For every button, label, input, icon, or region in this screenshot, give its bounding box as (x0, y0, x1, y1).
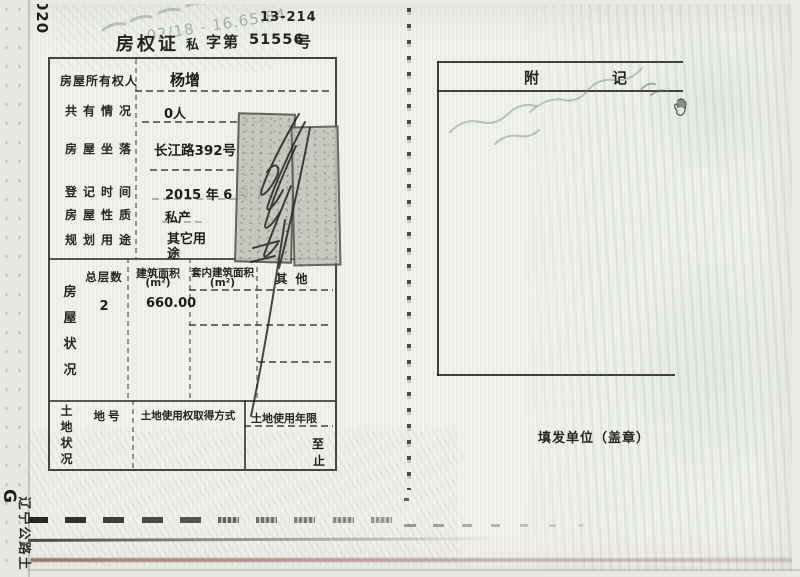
binding-perforation-marks (407, 8, 411, 490)
cut-mark (103, 517, 124, 523)
scan-margin-right (792, 0, 800, 577)
row-label-owner: 房屋所有权人 (60, 72, 138, 89)
cut-mark (256, 517, 277, 523)
row-label-coowner: 共有情况 (65, 102, 137, 119)
cut-mark-faded (433, 524, 444, 527)
row-label-regdate: 登记时间 (65, 183, 137, 200)
cut-mark-faded (578, 524, 584, 527)
cut-mark-faded (491, 524, 500, 527)
col-header-floors: 总层数 (80, 269, 128, 285)
term-from: 至 (312, 435, 324, 452)
form-code: 13-214 (260, 10, 317, 25)
land-status-side-label: 土地状况 (59, 403, 74, 467)
col-header-method: 土地使用权取得方式 (138, 408, 238, 423)
cut-mark (142, 517, 163, 523)
floors-value: 2 (89, 299, 119, 314)
scan-margin-bottom (0, 571, 800, 577)
scan-edge-bottom (28, 569, 800, 571)
grid-vline (132, 400, 134, 469)
row-underline (162, 221, 206, 223)
cut-mark (218, 517, 239, 523)
row-value-owner: 杨增 (170, 69, 200, 90)
small-tick-mark (404, 498, 409, 501)
cut-mark (180, 517, 201, 523)
cut-mark (65, 517, 86, 523)
row-underline (135, 90, 333, 92)
row-value-location: 长江路392号 (154, 139, 236, 159)
col-header-area-unit: (m²) (127, 277, 189, 289)
scan-margin-top (0, 0, 800, 4)
col-header-parcel: 地号 (84, 408, 132, 424)
term-to: 止 (313, 452, 325, 469)
row-label-nature: 房屋性质 (65, 206, 137, 223)
row-label-use: 规划用途 (65, 231, 137, 248)
area-value: 660.00 (146, 296, 190, 311)
cut-mark (371, 517, 392, 523)
handwritten-signature (225, 100, 345, 430)
scan-edge-shadow-line (30, 558, 792, 562)
row-value-coowner: 0人 (164, 103, 186, 122)
cut-mark-faded (549, 524, 556, 527)
cut-mark-faded (404, 524, 416, 527)
row-label-location: 房屋坐落 (65, 140, 137, 157)
scanned-certificate: 020 02/18 - 16.65.84 13-214 房权证 私 字第 515… (0, 0, 800, 577)
cert-type: 私 (186, 34, 199, 53)
spine-serial-number: 020 (33, 0, 51, 35)
row-value-nature: 私产 (165, 207, 191, 226)
cut-mark (333, 517, 354, 523)
cut-mark-faded (462, 524, 472, 527)
house-status-side-label: 房屋状况 (62, 280, 78, 384)
cert-hao: 号 (296, 31, 311, 52)
cut-mark-faded (520, 524, 528, 527)
cert-title: 房权证 (116, 30, 179, 56)
cut-mark (294, 517, 315, 523)
cert-zi-di: 字第 (206, 31, 240, 52)
bleed-through-text: 辽宁公路土 (21, 494, 35, 574)
scan-edge-left (28, 0, 30, 577)
paper-texture-right (520, 0, 794, 577)
